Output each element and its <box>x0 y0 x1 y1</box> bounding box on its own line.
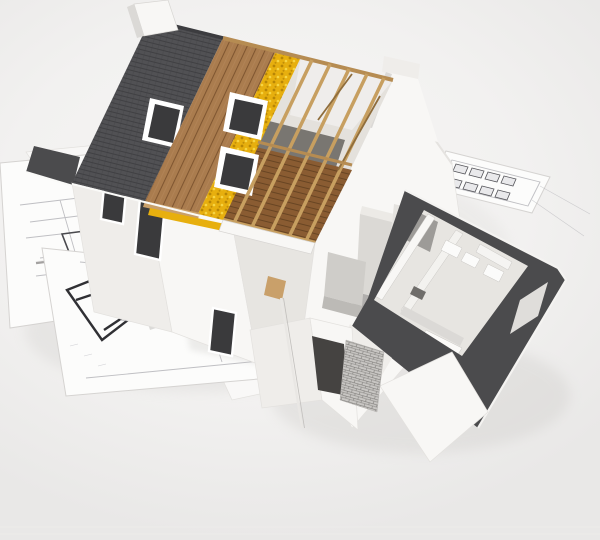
skylight-pane-2 <box>220 153 254 190</box>
render-canvas <box>0 0 600 540</box>
facade-window-3 <box>209 308 236 356</box>
brick-wall-patch <box>340 340 384 412</box>
frame-lines <box>0 527 600 534</box>
bottom-frame-lines <box>0 527 600 534</box>
house-render <box>0 0 600 540</box>
skylight-pane-1 <box>229 99 263 135</box>
